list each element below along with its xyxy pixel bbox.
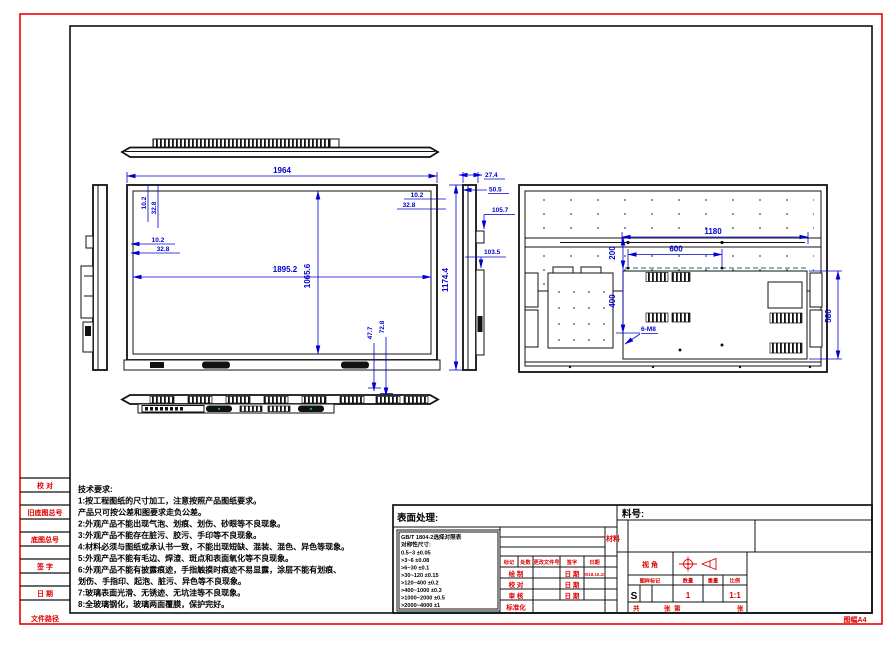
speaker-left	[202, 362, 230, 369]
dim-bottom-offset: 47.7	[367, 326, 374, 339]
tech-line: 划伤、手指印、起泡、脏污、异色等不良现象。	[78, 576, 246, 586]
tech-title: 技术要求:	[78, 484, 113, 494]
tolerance-subtitle: 对称性尺寸:	[401, 541, 431, 549]
drawing-mark-value: S	[631, 591, 638, 602]
sheet-total-label: 共	[633, 604, 640, 613]
rear-view	[519, 185, 827, 372]
tech-line: 7:玻璃表面光滑、无锈迹、无坑洼等不良现象。	[78, 588, 245, 598]
dim-edge-offset: 10.2	[152, 237, 165, 244]
tolerance-row: >400~1000 ±0.3	[401, 588, 442, 594]
dim-front-width: 1964	[273, 166, 291, 175]
side-view-left	[81, 185, 107, 370]
sheet-page-label: 第	[674, 604, 681, 613]
dim-handle-span: 1180	[704, 227, 722, 236]
audit-label: 审 核	[509, 591, 524, 600]
strip-label: 旧底图总号	[28, 508, 63, 517]
tolerance-row: >1000~2000 ±0.5	[401, 596, 445, 602]
sheet-label: 张	[664, 604, 671, 613]
surface-treatment-label: 表面处理:	[396, 512, 438, 524]
date-label: 日 期	[565, 580, 580, 589]
part-no-label: 料号:	[622, 508, 644, 520]
tolerance-row: >6~30 ±0.1	[401, 566, 429, 572]
tolerance-row: >30~120 ±0.15	[401, 573, 439, 579]
bottom-view	[122, 395, 438, 413]
date-label: 日 期	[565, 569, 580, 578]
dim-plate-height: 580	[824, 309, 833, 323]
rev-header: 日期	[589, 558, 599, 566]
rev-header: 处数	[519, 558, 531, 566]
draw-date: 2018.10.24	[584, 572, 607, 577]
spec-header: 图样标记	[640, 577, 662, 585]
tech-line: 产品只可按公差和图要求走负公差。	[78, 507, 206, 517]
tech-requirements: 技术要求: 1:按工程图纸的尺寸加工，注意按照产品图纸要求。 产品只可按公差和图…	[78, 484, 349, 609]
tech-line: 1:按工程图纸的尺寸加工，注意按照产品图纸要求。	[78, 496, 261, 506]
tolerance-row: >3~6 ±0.08	[401, 558, 429, 564]
front-view	[124, 185, 440, 370]
tech-line: 8:全玻璃钢化，玻璃两面覆膜，保护完好。	[78, 599, 229, 609]
dim-vesa-height: 400	[608, 294, 617, 308]
tolerance-row: >120~400 ±0.2	[401, 581, 439, 587]
tech-line: 4:材料必须与图纸或承认书一致，不能出现短缺、混装、混色、异色等现象。	[78, 542, 349, 552]
material-label: 材料	[605, 534, 620, 543]
dim-edge-offset: 10.2	[411, 192, 424, 199]
date-label: 日 期	[565, 591, 580, 600]
tech-line: 3:外观产品不能存在脏污、胶污、手印等不良现象。	[78, 530, 261, 540]
speaker-right	[341, 362, 369, 369]
check-label: 校 对	[509, 580, 524, 589]
ir-sensor	[150, 362, 164, 368]
spec-header: 重量	[708, 577, 719, 585]
sheet-format-label: 图幅A4	[844, 615, 867, 624]
rear-box	[476, 270, 484, 355]
spec-header: 比例	[730, 577, 740, 585]
camera-module	[476, 231, 484, 243]
strip-label: 校 对	[37, 481, 53, 490]
dim-edge-offset: 32.8	[157, 246, 170, 253]
sheet-label: 张	[737, 604, 744, 613]
scale-value: 1:1	[729, 591, 741, 600]
rev-header: 标记	[503, 558, 515, 566]
dim-vesa-width: 600	[669, 245, 683, 254]
strip-label: 文件路径	[31, 614, 59, 623]
dim-overall-height: 1174.4	[441, 267, 450, 292]
quantity-value: 1	[686, 591, 691, 600]
dim-depth-mid: 50.5	[489, 187, 502, 194]
draw-label: 绘 制	[509, 569, 524, 578]
dim-vesa-top-offset: 200	[608, 246, 617, 260]
dim-edge-offset: 32.8	[151, 201, 158, 214]
top-view	[122, 139, 438, 157]
tolerance-title: GB/T 1804-2选择对照表	[401, 533, 462, 541]
dim-edge-offset: 10.2	[141, 196, 148, 209]
strip-label: 底图总号	[31, 535, 59, 544]
tolerance-table: GB/T 1804-2选择对照表 对称性尺寸: 0.5~3 ±0.05 >3~6…	[397, 530, 500, 611]
tech-line: 6:外观产品不能有披露痕迹，手指触摸时痕迹不易显露，涂层不能有划痕、	[78, 565, 341, 575]
title-block: 表面处理: GB/T 1804-2选择对照表 对称性尺寸: 0.5~3 ±0.0…	[393, 505, 872, 613]
side-view-right	[463, 185, 484, 370]
rev-header: 更改文件号	[534, 558, 560, 566]
strip-label: 签 字	[36, 562, 53, 571]
dim-edge-offset: 32.8	[403, 202, 416, 209]
rev-header: 签字	[566, 558, 577, 566]
view-angle-label: 视 角	[642, 560, 658, 569]
tech-line: 5:外观产品不能有毛边、焊渣、斑点和表面氧化等不良现象。	[78, 553, 293, 563]
standardization-label: 标准化	[505, 603, 526, 612]
dim-depth-camera: 105.7	[492, 207, 509, 214]
drawing-sheet: 校 对 旧底图总号 底图总号 签 字 日 期 文件路径 1964	[0, 0, 892, 649]
dim-active-height: 1065.6	[303, 263, 312, 288]
spec-header: 数量	[683, 577, 694, 585]
dim-depth-back: 103.5	[484, 249, 501, 256]
projection-symbol-icon	[679, 557, 716, 572]
tech-line: 2:外观产品不能出现气泡、划痕、划伤、砂眼等不良现象。	[78, 519, 285, 529]
cad-drawing: 校 对 旧底图总号 底图总号 签 字 日 期 文件路径 1964	[0, 0, 892, 649]
dim-bottom-offset: 72.8	[379, 320, 386, 333]
tolerance-row: 0.5~3 ±0.05	[401, 551, 431, 557]
rear-dot-field-top	[532, 196, 814, 236]
title-block-right: 料号: 材料 视 角	[605, 508, 872, 613]
front-bottom-bar	[124, 360, 440, 370]
margin-strip-labels: 校 对 旧底图总号 底图总号 签 字 日 期 文件路径	[28, 481, 63, 623]
signature-grid: 标记 处数 更改文件号 签字 日期 绘 制 日 期 2018.10.24 校 对…	[500, 527, 617, 613]
dim-depth-front: 27.4	[485, 172, 498, 179]
strip-label: 日 期	[37, 589, 53, 598]
tolerance-row: >2000~4000 ±1	[401, 603, 440, 609]
dim-mount-holes: 6-M8	[641, 326, 656, 333]
dim-active-width: 1895.2	[273, 265, 298, 274]
